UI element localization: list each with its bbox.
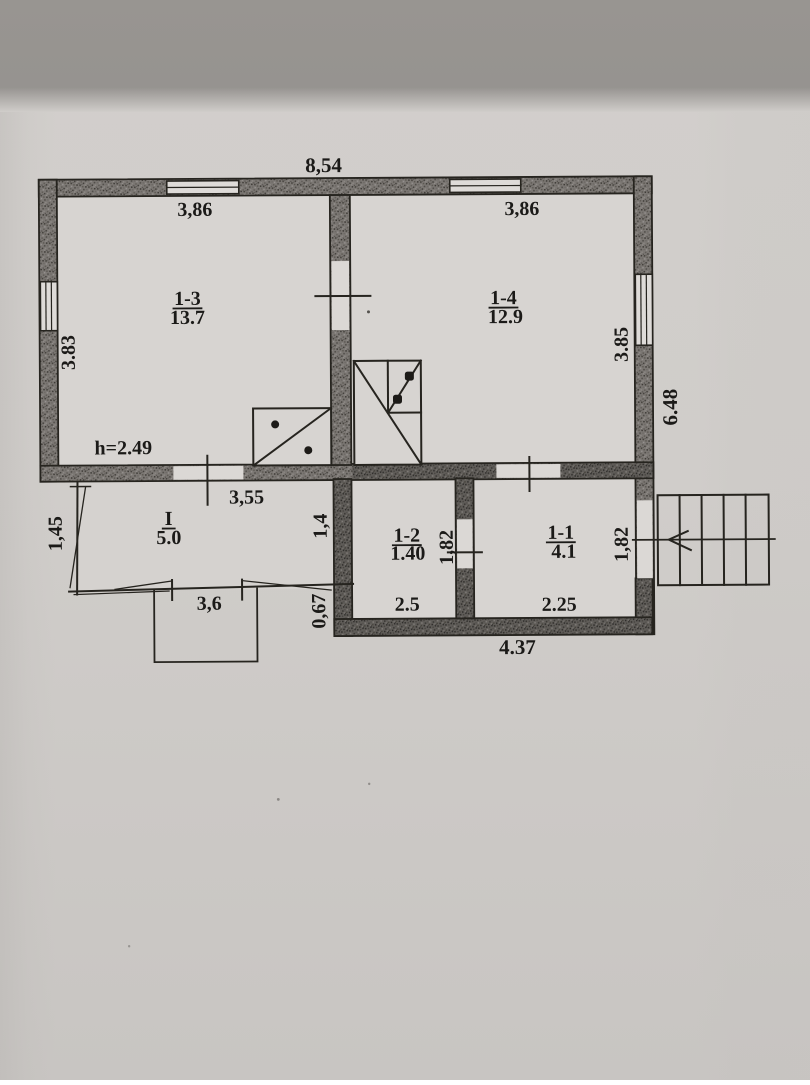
svg-text:5.0: 5.0 — [156, 527, 181, 549]
svg-text:3.85: 3.85 — [611, 327, 633, 362]
svg-text:3,86: 3,86 — [504, 198, 539, 220]
svg-text:3,55: 3,55 — [229, 486, 264, 508]
svg-text:1.40: 1.40 — [390, 543, 425, 565]
svg-text:6.48: 6.48 — [658, 389, 682, 426]
svg-text:3.83: 3.83 — [58, 335, 80, 370]
svg-text:4.1: 4.1 — [551, 541, 576, 563]
svg-text:1,82: 1,82 — [436, 530, 458, 565]
svg-text:h=2.49: h=2.49 — [94, 437, 152, 459]
svg-text:2.25: 2.25 — [542, 594, 577, 616]
svg-text:12.9: 12.9 — [488, 306, 523, 328]
svg-text:0,67: 0,67 — [308, 594, 330, 629]
svg-text:2.5: 2.5 — [395, 594, 420, 616]
svg-text:1,82: 1,82 — [611, 527, 633, 562]
svg-text:3,6: 3,6 — [197, 593, 222, 615]
svg-text:3,86: 3,86 — [177, 199, 212, 221]
svg-text:13.7: 13.7 — [170, 307, 205, 329]
svg-text:1,45: 1,45 — [45, 516, 67, 551]
svg-text:1,4: 1,4 — [310, 514, 332, 539]
svg-text:8,54: 8,54 — [305, 153, 342, 177]
svg-text:4.37: 4.37 — [499, 635, 536, 659]
